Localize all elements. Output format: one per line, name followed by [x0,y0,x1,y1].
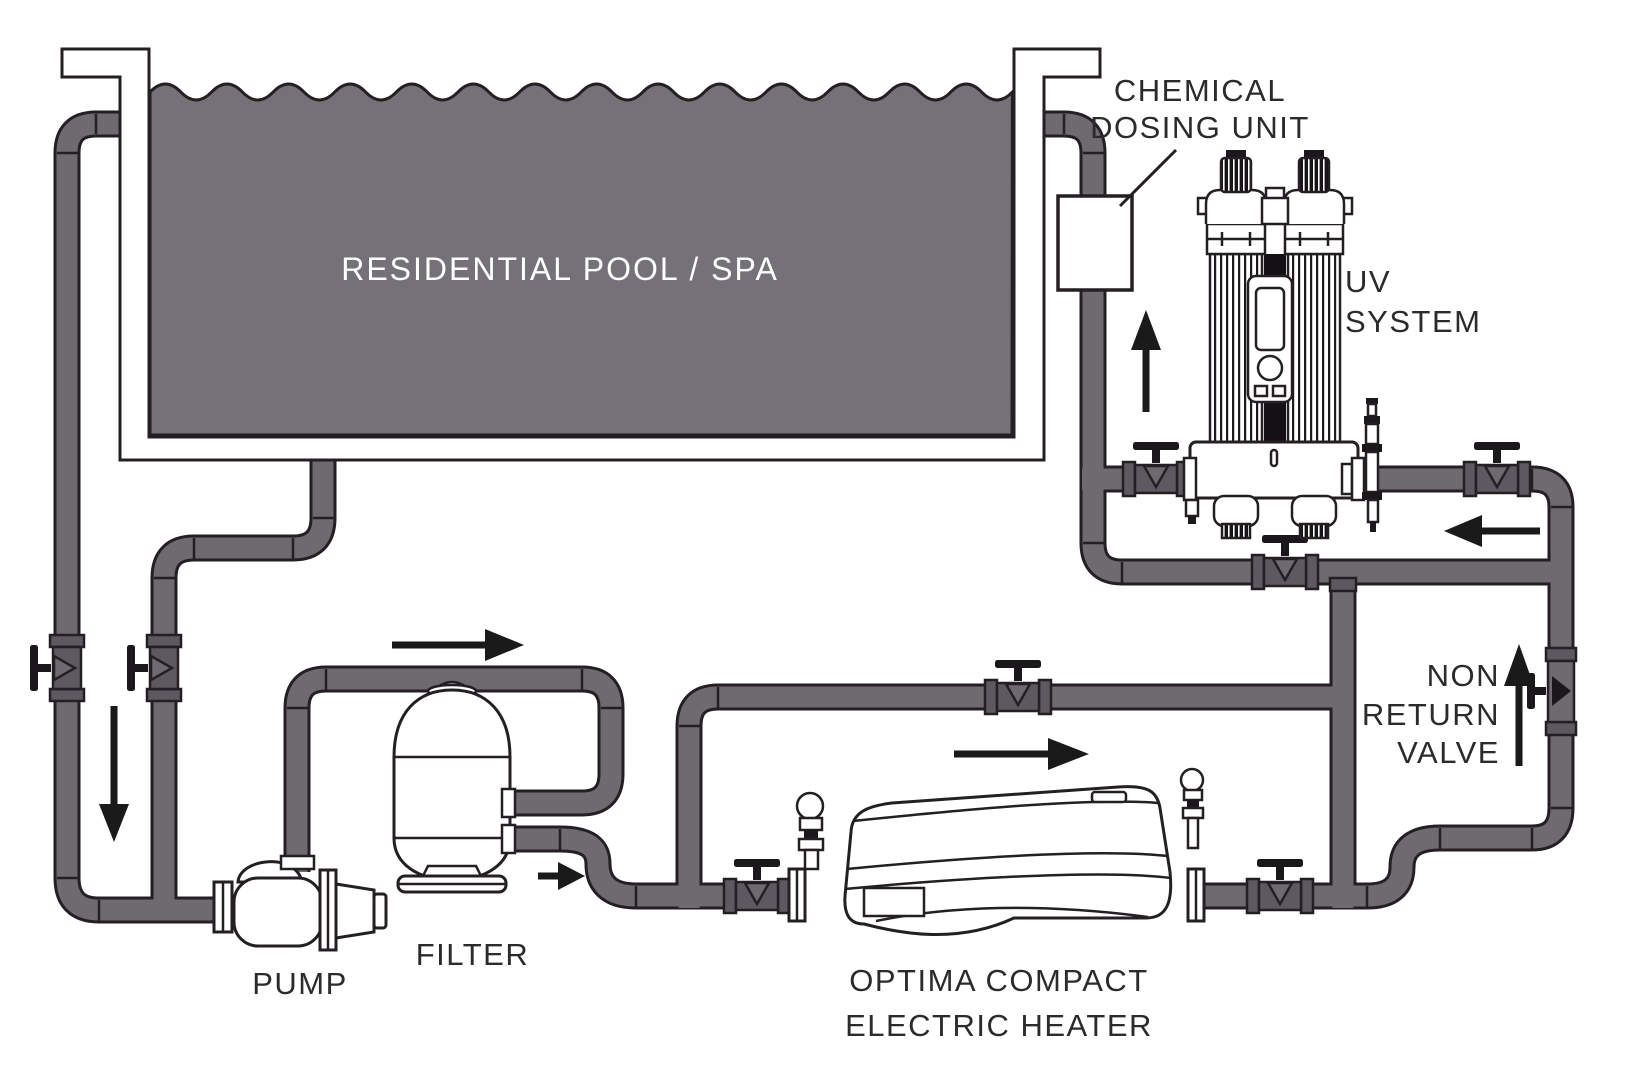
uv-lamp-right [1288,254,1340,442]
non-return-valve-label-line2: RETURN [1300,696,1500,735]
flow-arrow-down-suction [99,706,129,842]
dosing-leader-line [1120,150,1176,206]
filter-outlet-port [502,825,515,853]
flow-arrow-right-filter-out [538,862,585,890]
heater-left-hook [797,793,823,819]
flow-arrow-right-pump-to-filter [392,629,524,661]
uv-air-relief-valve [1362,398,1382,532]
pool-label: RESIDENTIAL POOL / SPA [280,250,840,288]
non-return-valve-label: NON RETURN VALVE [1300,657,1500,773]
non-return-valve-label-line1: NON [1300,657,1500,696]
non-return-valve-label-line3: VALVE [1300,734,1500,773]
chemical-dosing-label-line2: DOSING UNIT [1060,109,1340,146]
flow-arrow-left-uv-return [1444,515,1540,547]
valve-skimmer-line [30,635,84,701]
optima-compact-electric-heater [789,769,1204,935]
chemical-dosing-unit [1058,150,1176,290]
uv-cap-right [1299,158,1329,192]
valve-heater-outlet [1247,859,1313,913]
uv-system [1184,150,1382,538]
uv-cap-left [1221,158,1251,192]
valve-uv-outlet [1123,442,1189,496]
diagram-canvas: RESIDENTIAL POOL / SPA CHEMICAL DOSING U… [0,0,1632,1070]
uv-left-port [1184,458,1196,500]
valve-heater-bypass [985,660,1051,714]
uv-system-label-line2: SYSTEM [1345,302,1481,342]
uv-system-label: UV SYSTEM [1345,262,1481,342]
valve-drain-line [127,635,181,701]
pump-label: PUMP [230,965,370,1003]
valve-heater-inlet [724,859,790,913]
heater-right-hook [1181,769,1203,791]
uv-system-label-line1: UV [1345,262,1481,302]
filter [394,682,515,892]
heater-label-line2: ELECTRIC HEATER [799,1003,1199,1048]
heater-label-plate [864,888,924,916]
pump [214,856,386,950]
filter-label: FILTER [400,936,545,974]
valve-uv-bypass [1252,535,1318,589]
flow-arrow-right-heater [954,738,1089,770]
filter-inlet-port [502,789,515,817]
chemical-dosing-label-line1: CHEMICAL [1060,72,1340,109]
chemical-dosing-label: CHEMICAL DOSING UNIT [1060,72,1340,146]
non-return-valve [1527,648,1576,735]
pool-system-diagram [0,0,1632,1070]
flow-arrow-up-dosing-return [1131,310,1161,412]
heater-label: OPTIMA COMPACT ELECTRIC HEATER [799,958,1199,1048]
heater-label-line1: OPTIMA COMPACT [799,958,1199,1003]
valve-uv-inlet [1464,442,1530,496]
